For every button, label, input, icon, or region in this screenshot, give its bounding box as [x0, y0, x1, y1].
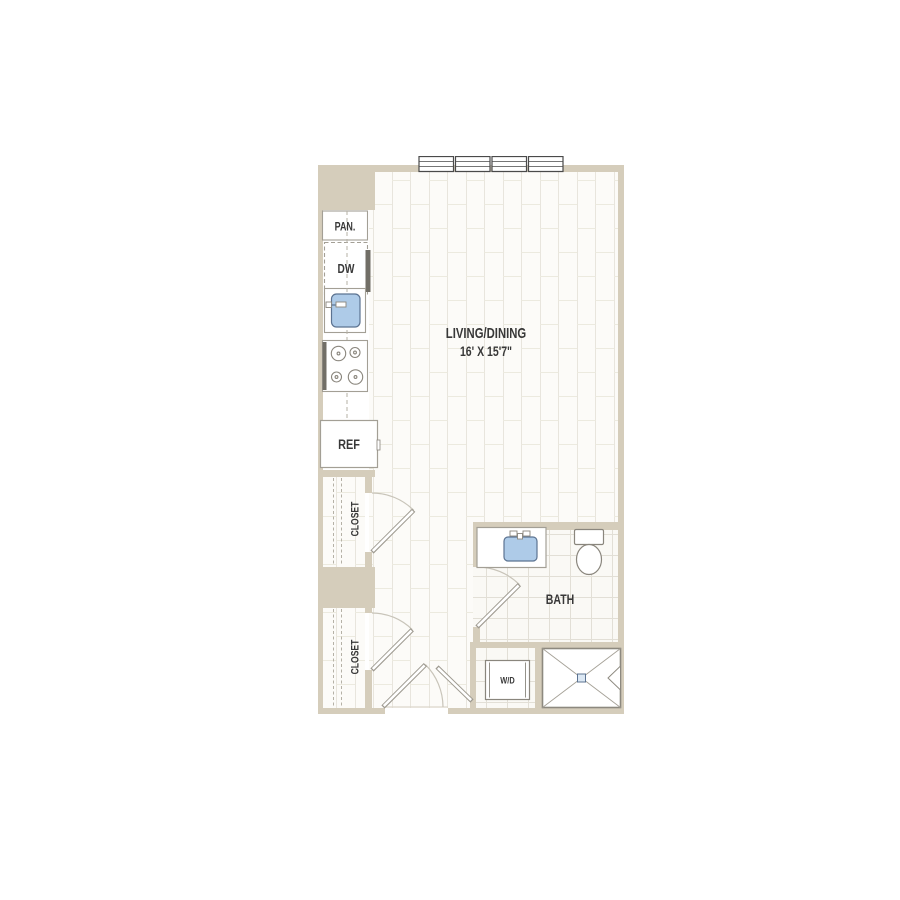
- shower-icon: [543, 649, 621, 708]
- stove-box: [323, 341, 368, 392]
- shower-drain-icon: [578, 674, 586, 682]
- floor-plan-page: PAN. DW REF LIVING/DINING 16' X 15'7" CL…: [0, 0, 900, 900]
- burner-center-icon: [354, 351, 357, 354]
- faucet-icon: [326, 302, 332, 308]
- living-dining-dimensions: 16' X 15'7": [460, 344, 512, 360]
- burner-center-icon: [335, 376, 338, 379]
- refrigerator-label: REF: [338, 437, 360, 453]
- pantry-label: PAN.: [335, 222, 356, 234]
- faucet-handle-icon: [523, 531, 530, 536]
- bath-sink-basin-icon: [504, 537, 537, 561]
- closet-lower-label: CLOSET: [350, 640, 362, 675]
- living-dining-label: LIVING/DINING: [446, 325, 526, 342]
- burner-center-icon: [337, 352, 340, 355]
- floor-plan-drawing: PAN. DW REF LIVING/DINING 16' X 15'7" CL…: [318, 156, 624, 715]
- kitchen-sink-basin-icon: [332, 294, 361, 327]
- bath-label: BATH: [546, 592, 574, 608]
- dishwasher-front-bar: [366, 250, 371, 292]
- toilet-tank-icon: [575, 530, 604, 545]
- toilet-bowl-icon: [577, 545, 602, 575]
- floor-plan: PAN. DW REF LIVING/DINING 16' X 15'7" CL…: [318, 156, 624, 715]
- closet-upper-label: CLOSET: [350, 502, 362, 537]
- faucet-handle-icon: [510, 531, 517, 536]
- refrigerator-handle-icon: [377, 440, 380, 450]
- burner-center-icon: [354, 376, 357, 379]
- faucet-handle-icon: [336, 302, 346, 307]
- faucet-spout-icon: [518, 534, 523, 540]
- dishwasher-label: DW: [338, 262, 355, 276]
- washer-dryer-label: W/D: [500, 675, 514, 686]
- stove-front-bar: [323, 342, 327, 390]
